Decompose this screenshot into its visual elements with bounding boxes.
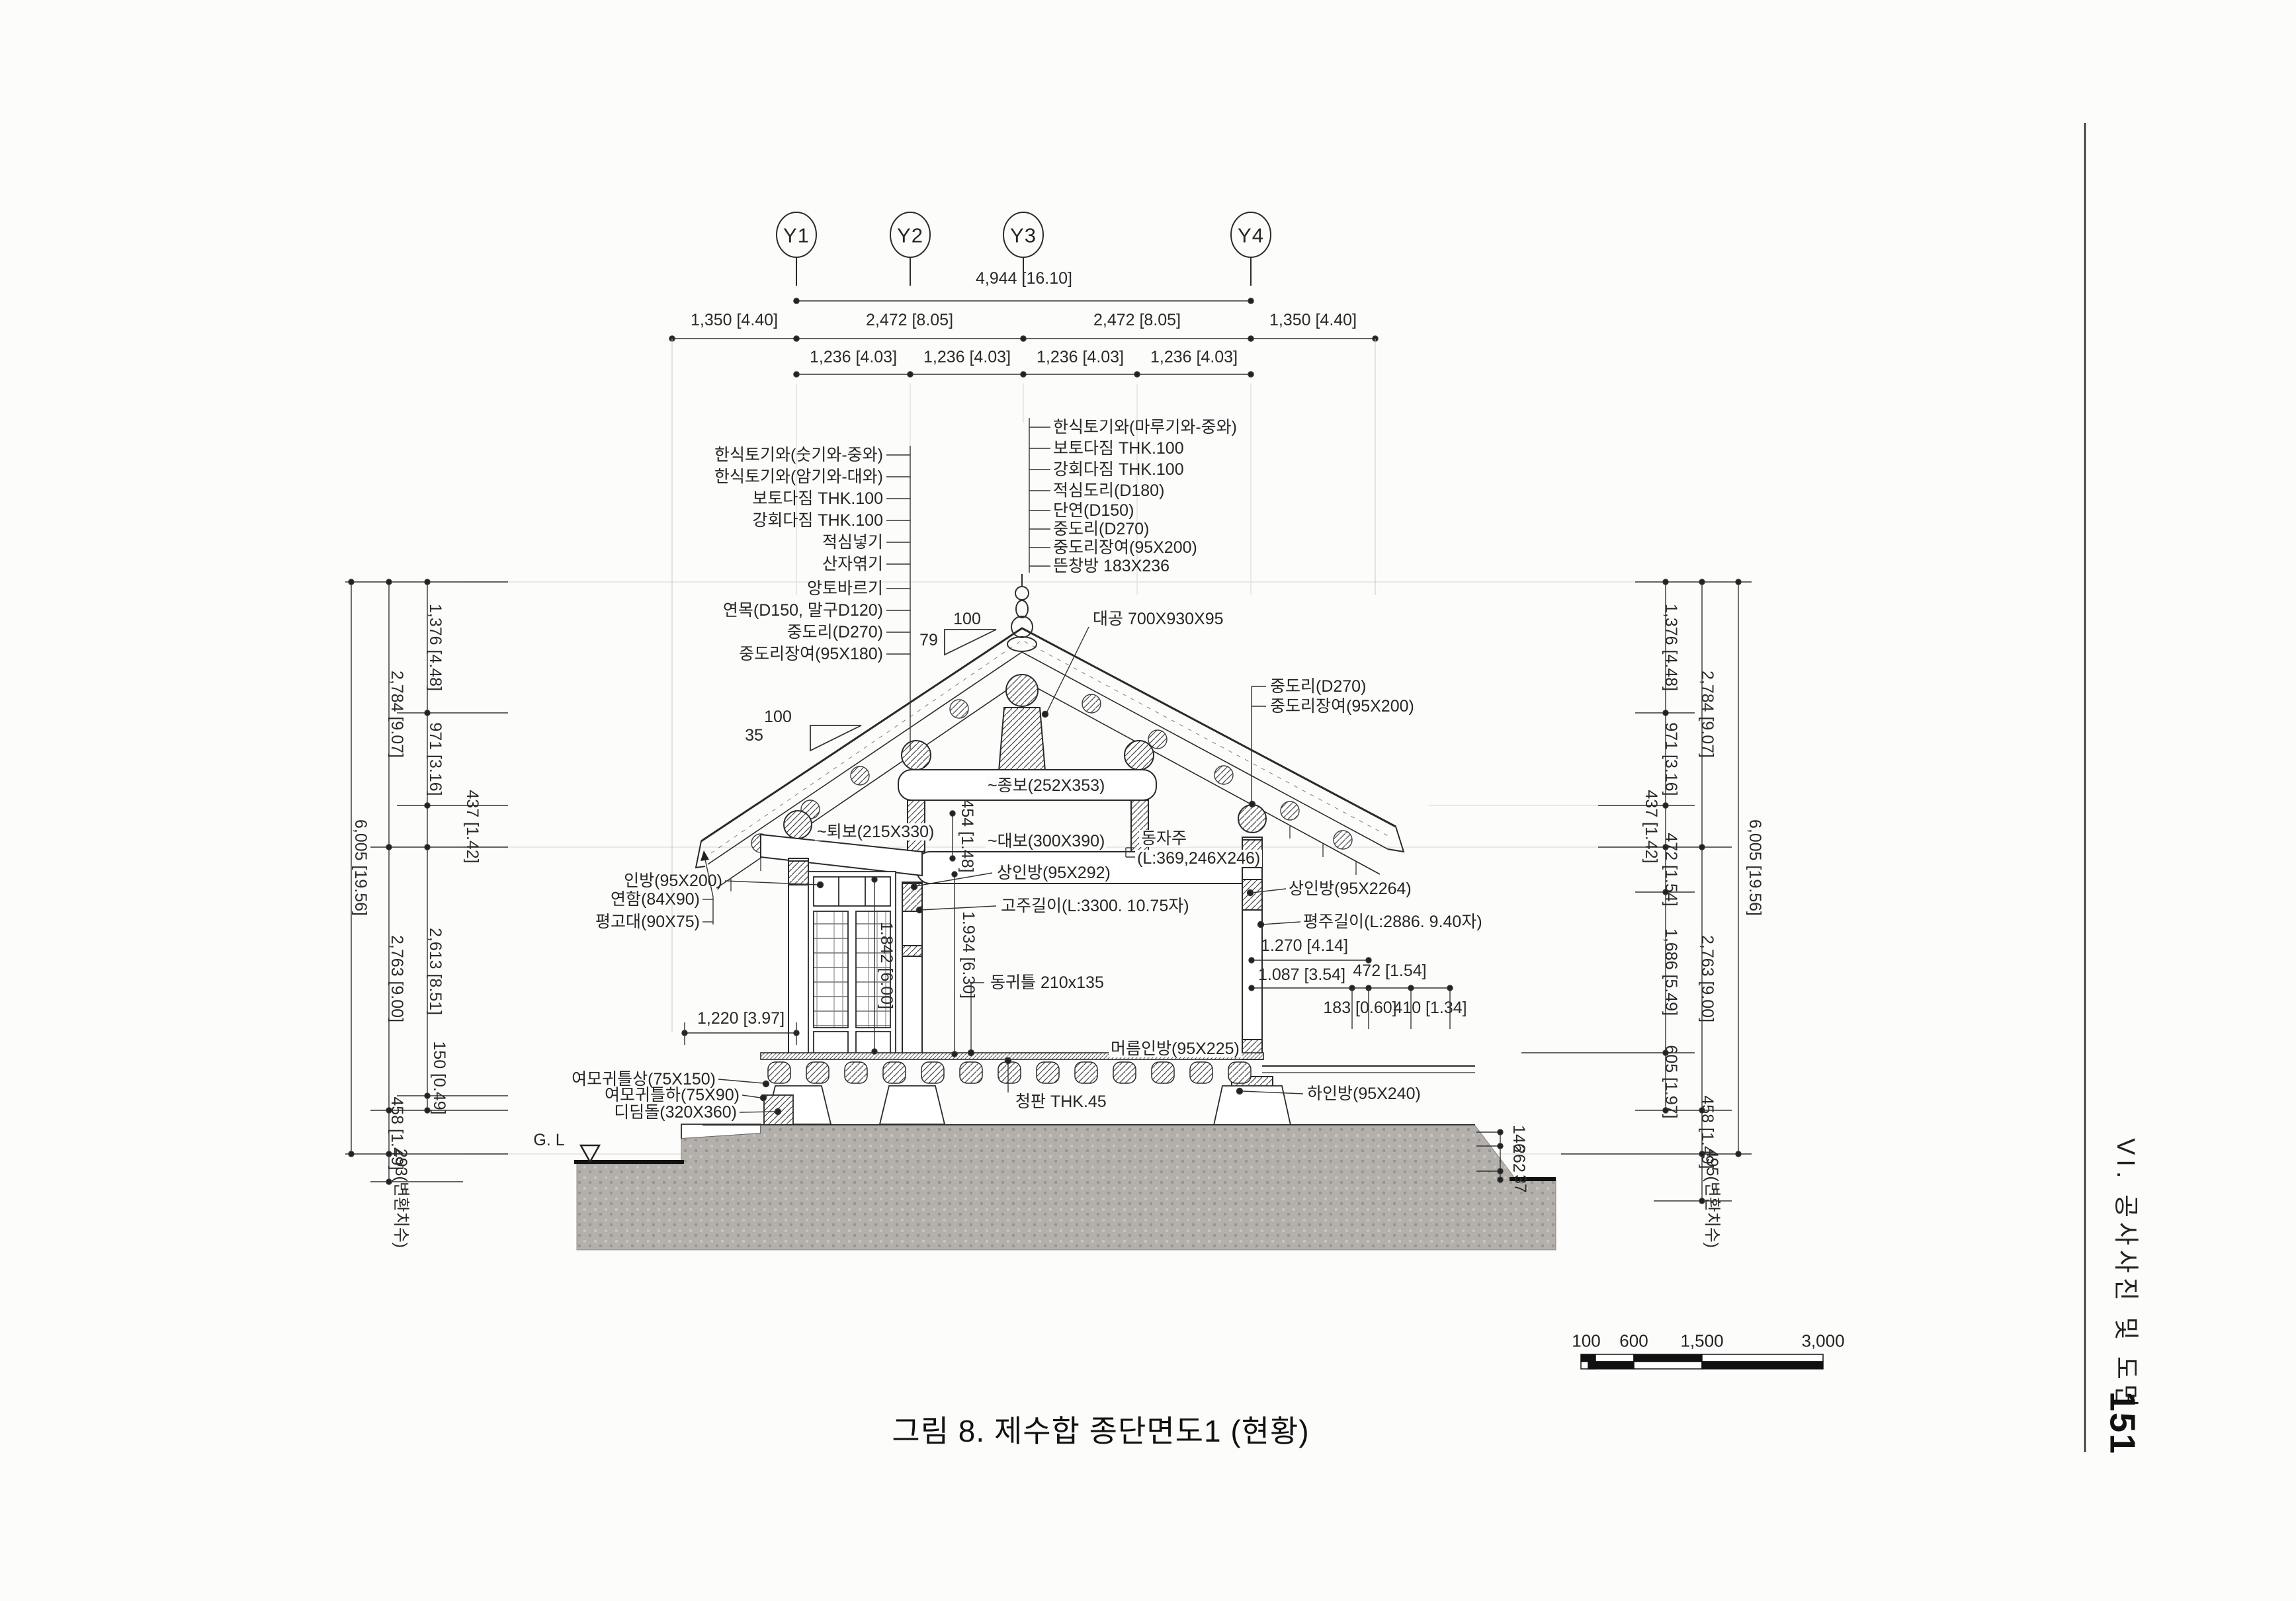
chain-left-seg-4: 2,613 [8.51] bbox=[427, 928, 444, 1015]
roof-layer-left-2: 한식토기와(암기와-대와) bbox=[714, 468, 883, 485]
toebo-label: ~퇴보(215X330) bbox=[815, 823, 936, 841]
chain-right-upper: 2,784 [9.07] bbox=[1699, 671, 1716, 758]
roof-layer-ridge-1: 한식토기와(마루기와-중와) bbox=[1053, 419, 1237, 436]
jongbo-label: ~종보(252X353) bbox=[986, 777, 1107, 794]
slope-ridge-run: 100 bbox=[953, 610, 981, 628]
yeonham-label: 연함(84X90) bbox=[611, 891, 700, 908]
dim-door-height: 1.842 [6.00] bbox=[878, 922, 895, 1009]
margin-section-title: VI. 공사사진 및 도면 bbox=[2111, 1138, 2138, 1412]
chain-right-total: 6,005 [19.56] bbox=[1746, 819, 1764, 916]
chain-left-seg-3: 437 [1.42] bbox=[464, 790, 481, 863]
grid-label-y2: Y2 bbox=[897, 226, 923, 247]
pyeonggodae-label: 평고대(90X75) bbox=[595, 913, 700, 930]
slope-ridge-rise: 79 bbox=[919, 632, 938, 649]
chain-left-total: 6,005 [19.56] bbox=[352, 819, 369, 916]
roof-layer-left-1: 한식토기와(숫기와-중와) bbox=[714, 446, 883, 464]
cheongpan-label: 청판 THK.45 bbox=[1013, 1093, 1109, 1110]
chain-right-below: 495(변환치수) bbox=[1703, 1149, 1721, 1248]
dim-overall: 4,944 [16.10] bbox=[976, 270, 1072, 287]
sanginbang-right-label: 상인방(95X2264) bbox=[1289, 880, 1412, 897]
roof-layer-ridge-8: 뜬창방 183X236 bbox=[1053, 557, 1169, 575]
inbang-label: 인방(95X200) bbox=[624, 872, 722, 889]
purlin-right-label-2: 중도리장여(95X200) bbox=[1270, 698, 1414, 715]
roof-layer-left-10: 중도리장여(95X180) bbox=[739, 645, 883, 663]
didimdol-label: 디딤돌(320X360) bbox=[614, 1104, 737, 1121]
page-number: 151 bbox=[2104, 1391, 2141, 1455]
yeomo-ha-label: 여모귀틀하(75X90) bbox=[605, 1087, 740, 1104]
chain-left-seg-5: 150 [0.49] bbox=[431, 1041, 448, 1114]
ground-level-label: G. L bbox=[533, 1131, 564, 1149]
purlin-eave-right bbox=[1238, 805, 1266, 833]
chain-right-seg-4: 472 [1.54] bbox=[1662, 833, 1679, 906]
floor-joists bbox=[768, 1062, 1251, 1083]
section-drawing bbox=[0, 0, 2296, 1601]
roof-layer-left-5: 적심넣기 bbox=[822, 534, 883, 551]
roof-layer-left-7: 앙토바르기 bbox=[807, 580, 883, 597]
daegong-post bbox=[999, 708, 1045, 771]
roof-layer-ridge-5: 단연(D150) bbox=[1053, 502, 1134, 519]
chain-left-lower: 2,763 [9.00] bbox=[388, 935, 405, 1022]
scalebar-600: 600 bbox=[1619, 1332, 1648, 1350]
goju-label: 고주길이(L:3300. 10.75자) bbox=[999, 897, 1191, 915]
dim-span-right: 2,472 [8.05] bbox=[1093, 311, 1181, 329]
roof-layer-left-9: 중도리(D270) bbox=[787, 624, 883, 641]
daegong-label: 대공 700X930X95 bbox=[1093, 610, 1224, 628]
chain-left-upper: 2,784 [9.07] bbox=[388, 671, 405, 758]
dim-span-left: 2,472 [8.05] bbox=[866, 311, 953, 329]
ground-step-262: 262 bbox=[1510, 1145, 1527, 1172]
scale-bar bbox=[1581, 1354, 1823, 1369]
dongjaju-size-label: (L:369,246X246) bbox=[1135, 850, 1262, 867]
figure-caption: 그림 8. 제수합 종단면도1 (현황) bbox=[892, 1415, 1309, 1447]
purlin-left bbox=[902, 741, 931, 770]
chain-right-seg-2: 971 [3.16] bbox=[1662, 722, 1679, 796]
meoreum-inbang-label: 머름인방(95X225) bbox=[1109, 1040, 1242, 1057]
chain-right-seg-1: 1,376 [4.48] bbox=[1662, 604, 1679, 691]
daebo-label: ~대보(300X390) bbox=[986, 833, 1107, 850]
roof-layer-ridge-2: 보토다짐 THK.100 bbox=[1053, 440, 1184, 457]
ridge-purlin bbox=[1006, 675, 1038, 706]
dim-right-overhang: 1,350 [4.40] bbox=[1269, 311, 1357, 329]
purlin-right-label-1: 중도리(D270) bbox=[1270, 678, 1366, 695]
purlin-mid-right bbox=[1125, 741, 1154, 770]
roof-layer-left-8: 연목(D150, 말구D120) bbox=[723, 602, 883, 619]
scalebar-1500: 1,500 bbox=[1680, 1332, 1723, 1350]
chain-right-lower: 2,763 [9.00] bbox=[1699, 935, 1716, 1022]
drawing-sheet: Y1 Y2 Y3 Y4 4,944 [16.10] 1,350 [4.40] 2… bbox=[0, 0, 2296, 1601]
purlin-eave-left bbox=[784, 811, 812, 839]
sanginbang-left-label: 상인방(95X292) bbox=[995, 864, 1113, 882]
dim-quarter-1: 1,236 [4.03] bbox=[810, 349, 897, 366]
ha-inbang-label: 하인방(95X240) bbox=[1307, 1085, 1421, 1102]
pyeongju-label: 평주길이(L:2886. 9.40자) bbox=[1303, 913, 1482, 930]
dim-door-width: 1,220 [3.97] bbox=[697, 1010, 785, 1027]
dim-183: 183 [0.60] bbox=[1323, 999, 1396, 1016]
roof-layer-ridge-7: 중도리장여(95X200) bbox=[1053, 539, 1197, 556]
dongjaju-label: 동자주 bbox=[1139, 830, 1189, 847]
ground bbox=[574, 1126, 1556, 1250]
chain-left-seg-1: 1,376 [4.48] bbox=[427, 604, 444, 691]
dim-left-overhang: 1,350 [4.40] bbox=[691, 311, 778, 329]
right-wall-column bbox=[1242, 837, 1262, 1057]
donggwiteul-label: 동귀틀 210x135 bbox=[988, 974, 1106, 991]
grid-label-y1: Y1 bbox=[783, 226, 810, 247]
dim-1087: 1.087 [3.54] bbox=[1258, 966, 1345, 983]
dim-472: 472 [1.54] bbox=[1353, 962, 1426, 979]
dim-quarter-2: 1,236 [4.03] bbox=[923, 349, 1011, 366]
ground-step-37: 37 bbox=[1511, 1174, 1529, 1193]
chain-right-seg-3: 437 [1.42] bbox=[1642, 790, 1660, 863]
chain-left-seg-2: 971 [3.16] bbox=[427, 722, 444, 796]
door-lattice-left bbox=[814, 911, 848, 1028]
roof-layer-left-6: 산자엮기 bbox=[822, 555, 883, 573]
dim-bay-right: 1.270 [4.14] bbox=[1261, 937, 1348, 954]
dim-beam-offset: 454 [1.48] bbox=[958, 799, 976, 872]
roof-layer-left-4: 강회다짐 THK.100 bbox=[752, 512, 883, 529]
dim-410: 410 [1.34] bbox=[1393, 999, 1467, 1016]
dim-goju-height: 1.934 [6.30] bbox=[960, 911, 977, 999]
grid-label-y3: Y3 bbox=[1010, 226, 1037, 247]
scalebar-3000: 3,000 bbox=[1801, 1332, 1844, 1350]
chain-right-seg-5: 1,686 [5.49] bbox=[1662, 928, 1679, 1016]
chain-right-seg-6: 605 [1.97] bbox=[1662, 1045, 1679, 1118]
roof-layer-ridge-4: 적심도리(D180) bbox=[1053, 482, 1164, 499]
ridge-finial bbox=[1007, 574, 1037, 651]
chain-left-below: 293(변환치수) bbox=[392, 1149, 409, 1248]
slope-eave-run: 100 bbox=[764, 708, 792, 725]
dim-quarter-4: 1,236 [4.03] bbox=[1150, 349, 1238, 366]
roof-layer-left-3: 보토다짐 THK.100 bbox=[752, 490, 883, 507]
slope-eave-rise: 35 bbox=[745, 727, 763, 744]
scalebar-100: 100 bbox=[1572, 1332, 1600, 1350]
roof-layer-ridge-3: 강회다짐 THK.100 bbox=[1053, 461, 1184, 478]
grid-label-y4: Y4 bbox=[1238, 226, 1264, 247]
left-wall-column bbox=[788, 858, 808, 1057]
dim-quarter-3: 1,236 [4.03] bbox=[1037, 349, 1124, 366]
roof-layer-ridge-6: 중도리(D270) bbox=[1053, 520, 1149, 538]
